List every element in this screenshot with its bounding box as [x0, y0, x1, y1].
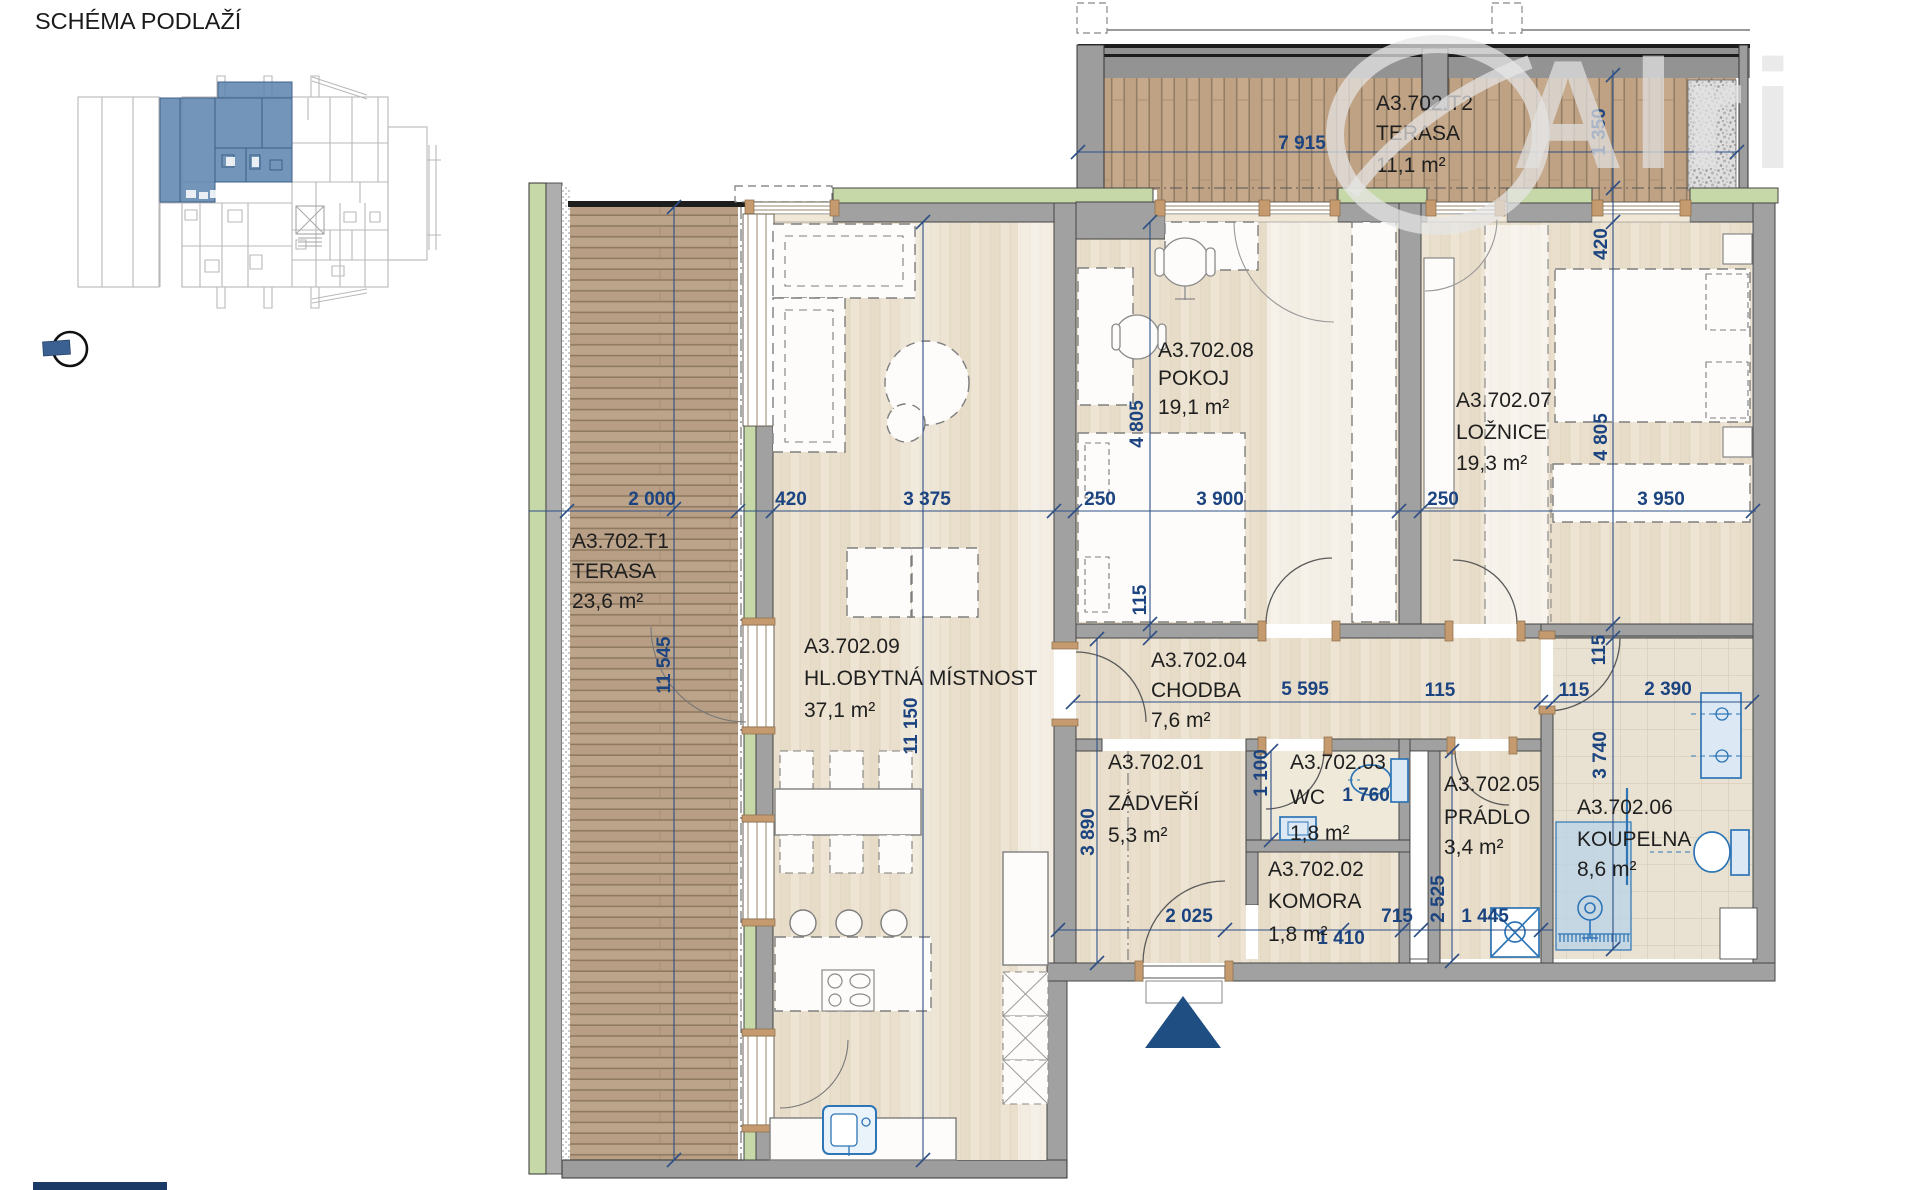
svg-text:2 000: 2 000 [628, 489, 676, 510]
svg-text:A3.702.03: A3.702.03 [1290, 751, 1386, 774]
svg-text:A3.702.07: A3.702.07 [1456, 389, 1552, 412]
svg-text:5,3 m²: 5,3 m² [1108, 824, 1168, 847]
svg-text:1,8 m²: 1,8 m² [1290, 822, 1350, 845]
svg-text:11 150: 11 150 [901, 697, 922, 754]
svg-text:115: 115 [1559, 680, 1590, 701]
svg-text:1,8 m²: 1,8 m² [1268, 923, 1328, 946]
svg-text:3 950: 3 950 [1637, 489, 1685, 510]
svg-text:PRÁDLO: PRÁDLO [1444, 806, 1530, 829]
svg-text:115: 115 [1589, 634, 1610, 665]
svg-text:WC: WC [1290, 786, 1325, 809]
svg-text:11 545: 11 545 [654, 636, 675, 693]
svg-text:420: 420 [1591, 228, 1612, 260]
svg-text:19,3 m²: 19,3 m² [1456, 452, 1527, 475]
svg-text:A3.702.05: A3.702.05 [1444, 773, 1540, 796]
svg-text:115: 115 [1425, 680, 1456, 701]
svg-text:TERASA: TERASA [572, 560, 656, 583]
svg-text:1 445: 1 445 [1461, 906, 1509, 927]
svg-text:250: 250 [1084, 489, 1116, 510]
svg-text:A3.702.01: A3.702.01 [1108, 751, 1204, 774]
svg-text:7 915: 7 915 [1278, 133, 1326, 154]
svg-text:2 525: 2 525 [1428, 875, 1449, 923]
svg-text:3 740: 3 740 [1590, 731, 1611, 779]
svg-text:LOŽNICE: LOŽNICE [1456, 421, 1547, 444]
svg-text:8,6 m²: 8,6 m² [1577, 858, 1637, 881]
svg-text:7,6 m²: 7,6 m² [1151, 709, 1211, 732]
svg-text:3 890: 3 890 [1078, 808, 1099, 856]
svg-text:3 375: 3 375 [903, 489, 951, 510]
svg-text:Alri: Alri [1512, 28, 1802, 201]
svg-text:A3.702.04: A3.702.04 [1151, 649, 1247, 672]
svg-text:A3.702.T1: A3.702.T1 [572, 530, 669, 553]
svg-text:SCHÉMA PODLAŽÍ: SCHÉMA PODLAŽÍ [35, 8, 242, 34]
svg-text:37,1 m²: 37,1 m² [804, 699, 875, 722]
svg-text:19,1 m²: 19,1 m² [1158, 396, 1229, 419]
svg-text:A3.702.08: A3.702.08 [1158, 339, 1254, 362]
svg-text:POKOJ: POKOJ [1158, 367, 1229, 390]
svg-text:ZÁDVEŘÍ: ZÁDVEŘÍ [1108, 792, 1199, 815]
svg-text:115: 115 [1130, 584, 1151, 615]
svg-text:3,4 m²: 3,4 m² [1444, 836, 1504, 859]
svg-text:3 900: 3 900 [1196, 489, 1244, 510]
svg-text:HL.OBYTNÁ MÍSTNOST: HL.OBYTNÁ MÍSTNOST [804, 667, 1038, 690]
svg-text:A3.702.02: A3.702.02 [1268, 858, 1364, 881]
svg-text:4 805: 4 805 [1127, 400, 1148, 448]
svg-text:420: 420 [775, 489, 807, 510]
svg-text:2 390: 2 390 [1644, 679, 1692, 700]
svg-text:KOMORA: KOMORA [1268, 890, 1361, 913]
svg-text:1 100: 1 100 [1251, 749, 1272, 797]
svg-text:A3.702.06: A3.702.06 [1577, 796, 1673, 819]
svg-text:KOUPELNA: KOUPELNA [1577, 828, 1691, 851]
svg-text:2 025: 2 025 [1165, 906, 1213, 927]
svg-text:A3.702.09: A3.702.09 [804, 635, 900, 658]
svg-text:715: 715 [1381, 906, 1413, 927]
svg-text:1 760: 1 760 [1342, 785, 1390, 806]
svg-text:CHODBA: CHODBA [1151, 679, 1241, 702]
svg-text:250: 250 [1427, 489, 1459, 510]
svg-text:4 805: 4 805 [1591, 413, 1612, 461]
svg-text:23,6 m²: 23,6 m² [572, 590, 643, 613]
svg-text:5 595: 5 595 [1281, 679, 1329, 700]
